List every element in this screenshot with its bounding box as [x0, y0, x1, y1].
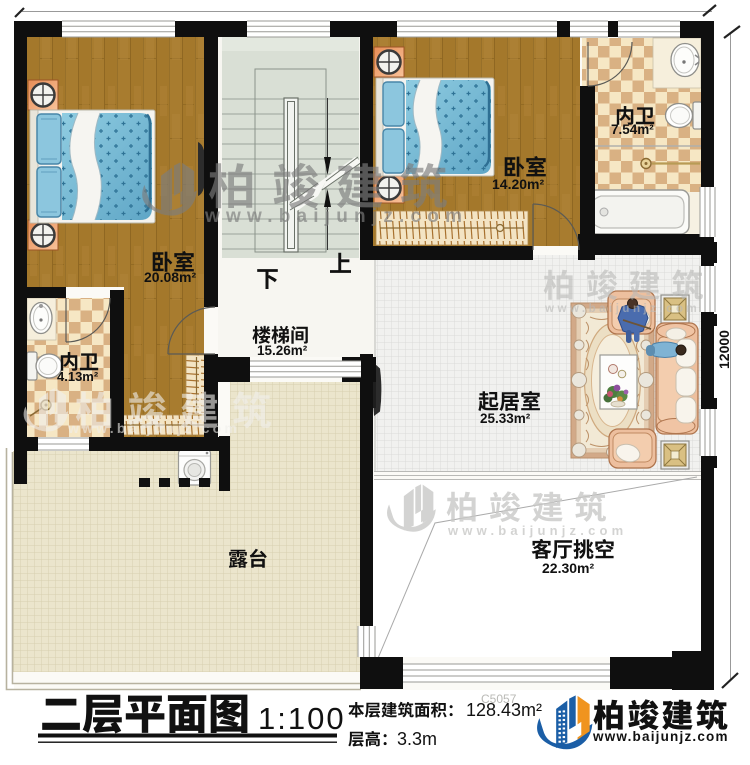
svg-text:3.3m: 3.3m [397, 729, 437, 749]
svg-text:25.33m²: 25.33m² [480, 411, 531, 426]
svg-text:20.08m²: 20.08m² [144, 269, 196, 285]
svg-text:www.baijunjz.com: www.baijunjz.com [204, 206, 468, 227]
svg-text:C5057: C5057 [481, 692, 517, 706]
svg-text:1:100: 1:100 [258, 701, 346, 736]
svg-text:www.baijunjz.com: www.baijunjz.com [592, 729, 729, 744]
svg-text:14.20m²: 14.20m² [492, 176, 544, 192]
svg-text:12000: 12000 [716, 330, 732, 369]
svg-text:www.baijunjz.com: www.baijunjz.com [67, 420, 240, 436]
svg-text:15.26m²: 15.26m² [257, 343, 308, 358]
svg-text:7.54m²: 7.54m² [611, 122, 654, 137]
svg-text:4.13m²: 4.13m² [57, 369, 99, 384]
svg-text:www.baijunjz.com: www.baijunjz.com [544, 303, 700, 315]
svg-text:22.30m²: 22.30m² [542, 560, 594, 576]
svg-text:www.baijunjz.com: www.baijunjz.com [447, 523, 627, 538]
